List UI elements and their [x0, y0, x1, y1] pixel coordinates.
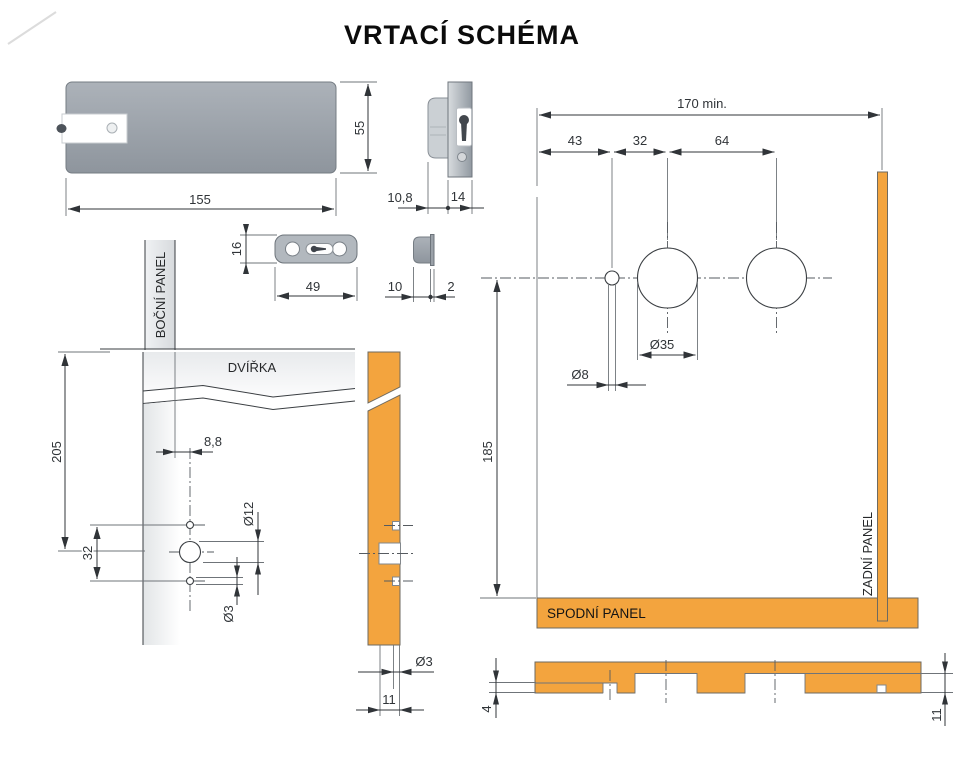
- screw-hole-bottom: [187, 578, 194, 585]
- dim-strike-height: 16: [229, 242, 244, 256]
- bottom-panel-bar: [535, 662, 921, 693]
- pilot-hole: [605, 271, 619, 285]
- dim-lock-width: 155: [189, 192, 211, 207]
- dim-plan-height: 185: [480, 441, 495, 463]
- bottom-panel-front-view: 4 11: [479, 653, 953, 726]
- door-edge-lower: [368, 395, 400, 645]
- dim-screw-hole: Ø3: [221, 605, 236, 622]
- dim-edge-offset: 8,8: [204, 434, 222, 449]
- dim-cup-dia: Ø35: [650, 337, 675, 352]
- drawing-canvas: VRTACÍ SCHÉMA 55 155 10,8 1: [0, 0, 974, 764]
- dim-screw-spacing: 32: [80, 546, 95, 560]
- lock-side-view: 10,8 14: [387, 82, 484, 214]
- dim-strike-width: 49: [306, 279, 320, 294]
- dim-dist-edge: 43: [568, 133, 582, 148]
- dim-pilot-dia: Ø8: [571, 367, 588, 382]
- lock-cylinder: [107, 123, 117, 133]
- dim-min-width: 170 min.: [677, 96, 727, 111]
- strike-side-body: [414, 237, 431, 263]
- strike-hole-right: [333, 242, 347, 256]
- door-edge-strip: [143, 401, 180, 646]
- corner-watermark: [8, 12, 56, 44]
- drill-plan-view: 170 min. 43 32 64 Ø35 Ø8 185: [480, 96, 918, 628]
- lock-knob: [57, 124, 67, 133]
- dim-groove-depth: 4: [479, 705, 494, 712]
- strike-plate-side-view: 10 2: [385, 235, 455, 303]
- strike-plate-top-view: 16 49: [229, 224, 357, 301]
- screw-hole-top: [187, 522, 194, 529]
- bottom-panel-label: SPODNÍ PANEL: [547, 606, 646, 621]
- lock-top-view: 55 155: [57, 82, 378, 216]
- dim-edge-hole: Ø3: [415, 654, 432, 669]
- door-edge-view: Ø3 11: [356, 352, 434, 716]
- dim-center-hole: Ø12: [241, 502, 256, 527]
- door-label: DVÍŘKA: [228, 360, 277, 375]
- strike-side-flange: [431, 235, 435, 266]
- panel-small-hole: [877, 685, 886, 693]
- dim-height-to-center: 205: [49, 441, 64, 463]
- dim-faceplate-width: 14: [451, 189, 465, 204]
- dim-dist-hole: 32: [633, 133, 647, 148]
- cup-hole-left: [638, 248, 698, 308]
- drilling-schema-page: VRTACÍ SCHÉMA 55 155 10,8 1: [0, 0, 974, 764]
- dim-edge-offset: 11: [382, 692, 396, 707]
- faceplate-screw: [458, 153, 467, 162]
- dim-lock-depth: 10,8: [387, 190, 412, 205]
- center-hole: [180, 542, 201, 563]
- door-front-view: BOČNÍ PANEL DVÍŘKA 8,8 205 32: [49, 240, 355, 645]
- rear-panel-shape: [878, 172, 888, 621]
- dim-lock-height: 55: [352, 121, 367, 135]
- rear-panel-label: ZADNÍ PANEL: [860, 512, 875, 596]
- dim-panel-edge-offset: 11: [929, 708, 944, 722]
- dim-strike-depth: 10: [388, 279, 402, 294]
- dim-dist-circles: 64: [715, 133, 729, 148]
- cup-hole-right: [747, 248, 807, 308]
- lock-body-side: [428, 98, 449, 158]
- strike-hole-left: [286, 242, 300, 256]
- keyhole-stem: [461, 122, 467, 141]
- side-panel-label: BOČNÍ PANEL: [153, 252, 168, 338]
- page-title: VRTACÍ SCHÉMA: [344, 19, 580, 50]
- door-edge-upper: [368, 352, 400, 403]
- dim-strike-flange: 2: [447, 279, 454, 294]
